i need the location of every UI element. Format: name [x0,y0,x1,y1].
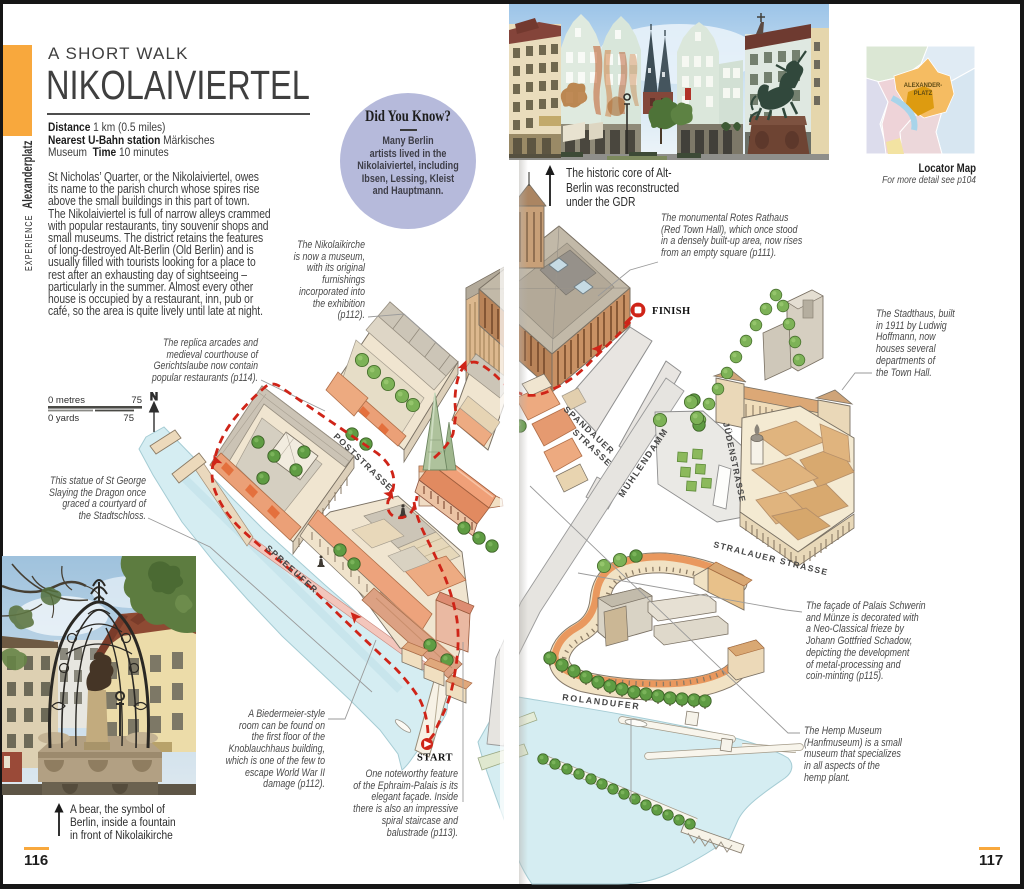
svg-text:FINISH: FINISH [652,306,691,317]
svg-text:ALEXANDER-: ALEXANDER- [904,82,942,89]
svg-text:75: 75 [131,395,142,406]
svg-text:0 metres: 0 metres [48,395,85,406]
svg-text:0 yards: 0 yards [48,413,79,424]
svg-text:PLATZ: PLATZ [914,90,933,97]
svg-text:START: START [417,753,453,764]
svg-text:75: 75 [123,413,134,424]
